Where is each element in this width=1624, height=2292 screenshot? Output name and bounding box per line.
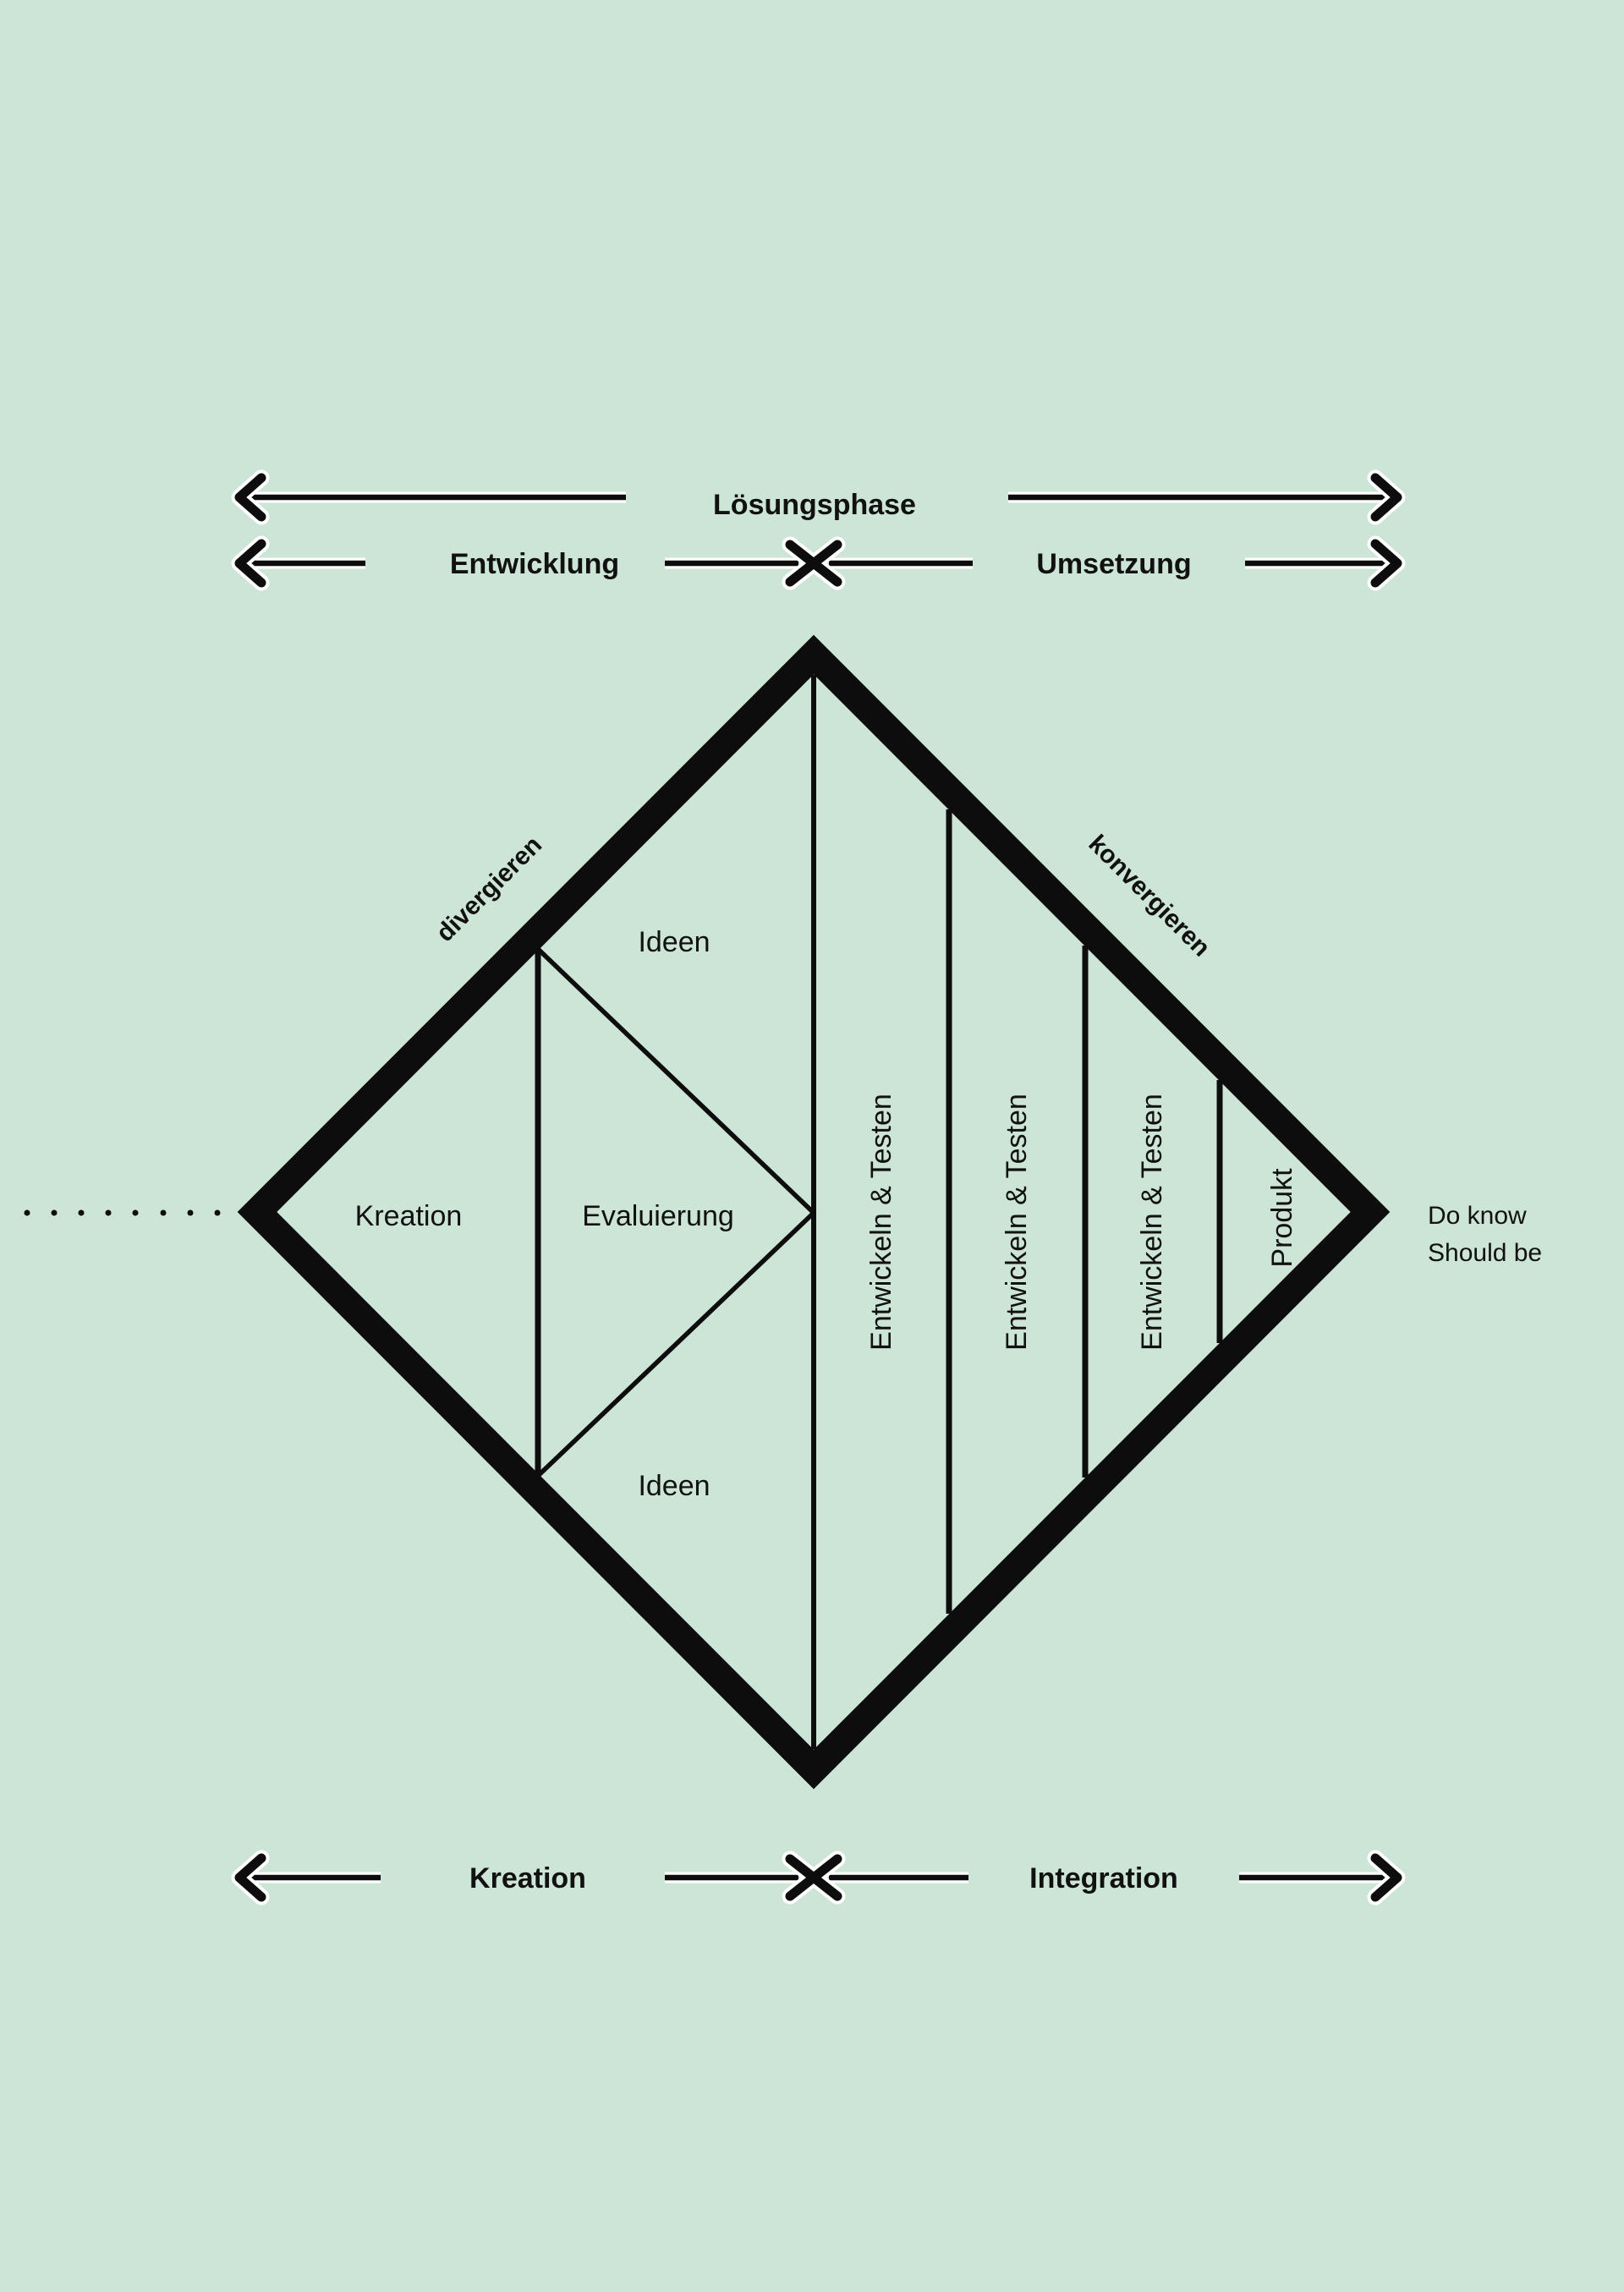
arrow-left-icon — [239, 478, 626, 517]
label-umsetzung: Umsetzung — [1036, 548, 1191, 580]
label-ideen-top: Ideen — [638, 926, 710, 958]
label-entwickeln-testen-2: Entwickeln & Testen — [1001, 1094, 1033, 1351]
label-produkt: Produkt — [1266, 1168, 1298, 1268]
label-entwickeln-testen-1: Entwickeln & Testen — [865, 1094, 897, 1351]
annotation-do-know: Do know Should be — [1428, 1202, 1542, 1267]
label-ideen-bottom: Ideen — [638, 1470, 710, 1502]
annotation-line-1: Do know — [1428, 1202, 1527, 1230]
label-entwickeln-testen-3: Entwickeln & Testen — [1136, 1094, 1168, 1351]
double-diamond: Ideen Kreation Evaluierung Ideen Entwick… — [257, 655, 1370, 1769]
development-implementation-axis: Entwicklung Umsetzung — [239, 544, 1397, 583]
arrow-left-short-icon — [239, 1858, 381, 1897]
label-integration: Integration — [1029, 1862, 1178, 1894]
label-entwicklung: Entwicklung — [450, 548, 619, 580]
arrow-right-short-icon — [1239, 1858, 1397, 1897]
label-evaluierung: Evaluierung — [582, 1200, 734, 1232]
creation-integration-axis: Kreation Integration — [239, 1858, 1397, 1897]
dotted-lead-line — [25, 1210, 221, 1216]
arrow-right-short-icon — [1245, 544, 1397, 583]
phase-title: Lösungsphase — [713, 489, 916, 521]
annotation-line-2: Should be — [1428, 1239, 1542, 1267]
label-kreation-bottom: Kreation — [469, 1862, 586, 1894]
label-kreation-inner: Kreation — [355, 1200, 463, 1232]
evaluation-lower-diagonal — [538, 1213, 814, 1476]
evaluation-upper-diagonal — [538, 949, 814, 1213]
arrow-left-short-icon — [239, 544, 365, 583]
solution-phase-axis: Lösungsphase — [239, 478, 1397, 521]
design-process-diagram: Lösungsphase Entwicklung Umsetzung — [0, 0, 1624, 2292]
arrow-right-icon — [1008, 478, 1397, 517]
